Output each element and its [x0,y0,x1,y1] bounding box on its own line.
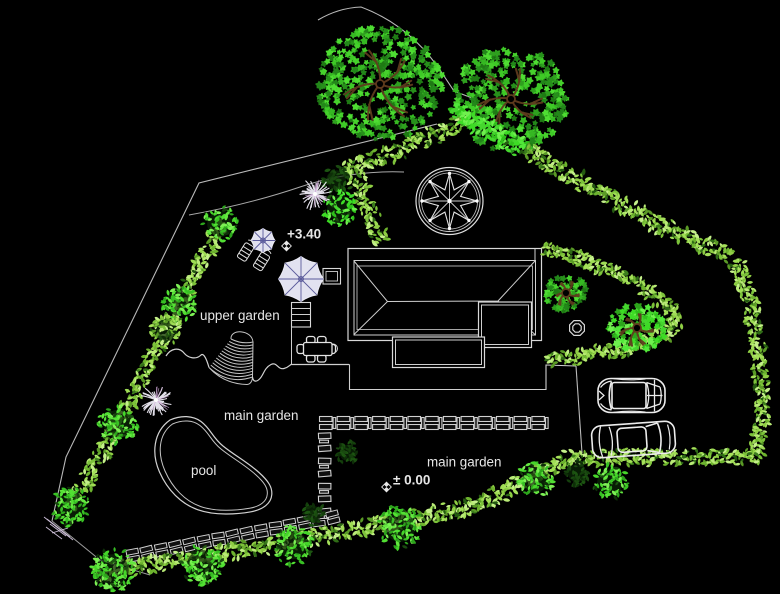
svg-text:+3.40: +3.40 [287,227,321,242]
svg-text:upper garden: upper garden [200,308,280,323]
svg-text:± 0.00: ± 0.00 [393,473,430,488]
svg-text:main garden: main garden [224,408,298,423]
svg-text:pool: pool [191,463,216,478]
svg-text:main garden: main garden [427,455,501,470]
